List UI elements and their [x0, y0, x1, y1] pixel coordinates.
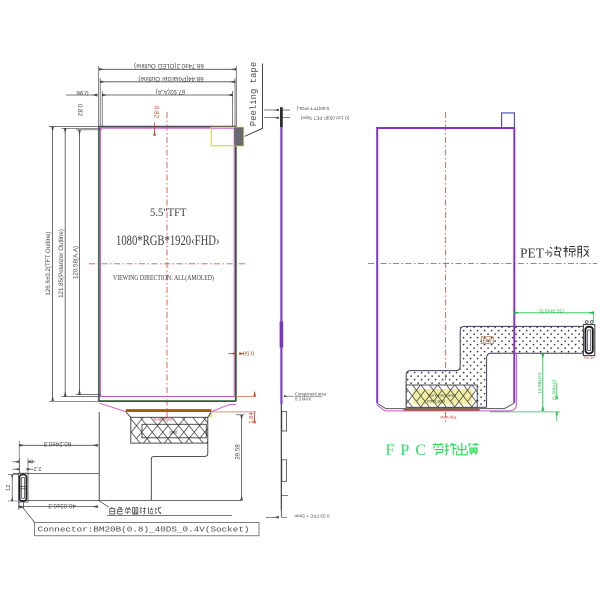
svg-text:0.3 MAX: 0.3 MAX — [295, 397, 311, 402]
svg-text:PET+: PET+ — [520, 246, 552, 261]
svg-text:0.33 FPC + 5mm: 0.33 FPC + 5mm — [294, 513, 329, 518]
svg-text:(0.1±0.05)(F-PET Tape): (0.1±0.05)(F-PET Tape) — [300, 115, 349, 120]
svg-text:EMI: EMI — [483, 338, 492, 344]
svg-text:120.58(A.A): 120.58(A.A) — [72, 246, 79, 279]
svg-text:(1.0MAX): (1.0MAX) — [551, 379, 557, 400]
svg-text:P/N Label: P/N Label — [427, 398, 445, 403]
svg-text:0.66(TFT+POL): 0.66(TFT+POL) — [296, 106, 329, 111]
svg-text:67.92(A.A): 67.92(A.A) — [156, 88, 186, 95]
svg-text:68.74±0.2(OLED Outline): 68.74±0.2(OLED Outline) — [134, 62, 204, 69]
svg-text:0.50: 0.50 — [243, 350, 254, 356]
svg-text:6: 6 — [30, 458, 33, 464]
svg-text:Connector area: Connector area — [428, 392, 456, 397]
svg-text:0.96: 0.96 — [76, 89, 89, 96]
svg-text:2.2: 2.2 — [33, 465, 41, 471]
svg-text:Top view: Top view — [439, 415, 456, 420]
svg-text:Pin 40: Pin 40 — [584, 356, 595, 360]
svg-text:12: 12 — [6, 485, 12, 491]
svg-text:(31.34±0.5): (31.34±0.5) — [539, 308, 564, 314]
svg-text:gold: gold — [170, 430, 179, 435]
svg-text:1.84: 1.84 — [249, 412, 255, 424]
svg-text:68.44(Polarizer Outline): 68.44(Polarizer Outline) — [138, 75, 203, 82]
svg-text:FPC: FPC — [386, 442, 427, 459]
svg-text:0.82: 0.82 — [152, 106, 159, 119]
svg-text:121.85(Polarizer Outline): 121.85(Polarizer Outline) — [58, 229, 65, 298]
svg-text:Peeling tape: Peeling tape — [249, 62, 259, 127]
svg-text:Connector:BM20B(0.8)_40DS_0.4V: Connector:BM20B(0.8)_40DS_0.4V(Socket) — [38, 527, 250, 535]
svg-text:40.03±0.3: 40.03±0.3 — [48, 502, 76, 509]
svg-text:1080*RGB*1920‹FHD›: 1080*RGB*1920‹FHD› — [116, 233, 220, 249]
svg-text:60.24±0.3: 60.24±0.3 — [43, 440, 71, 447]
svg-text:126.6±0.2(TFT Outline): 126.6±0.2(TFT Outline) — [45, 231, 52, 295]
svg-text:13.98±0.5: 13.98±0.5 — [537, 372, 543, 394]
svg-text:VIEWING DIRECTION: ALL(AMOLED): VIEWING DIRECTION: ALL(AMOLED) — [113, 274, 214, 282]
svg-text:39.58: 39.58 — [234, 444, 241, 460]
svg-text:0.82: 0.82 — [76, 104, 83, 117]
svg-text:5.5"TFT: 5.5"TFT — [150, 205, 187, 219]
